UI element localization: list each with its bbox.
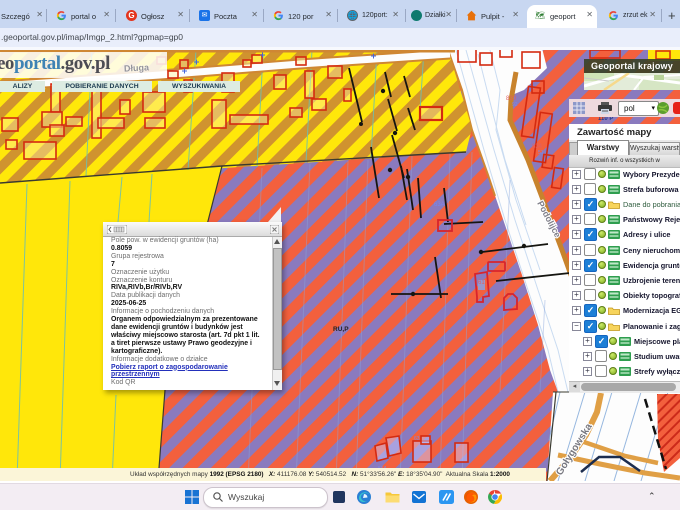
svg-text:61: 61 (478, 280, 485, 286)
svg-text:63A: 63A (434, 202, 445, 208)
svg-text:51: 51 (538, 150, 544, 156)
svg-text:RU,P: RU,P (333, 326, 349, 333)
svg-text:63: 63 (414, 436, 420, 442)
svg-text:92: 92 (512, 102, 518, 108)
